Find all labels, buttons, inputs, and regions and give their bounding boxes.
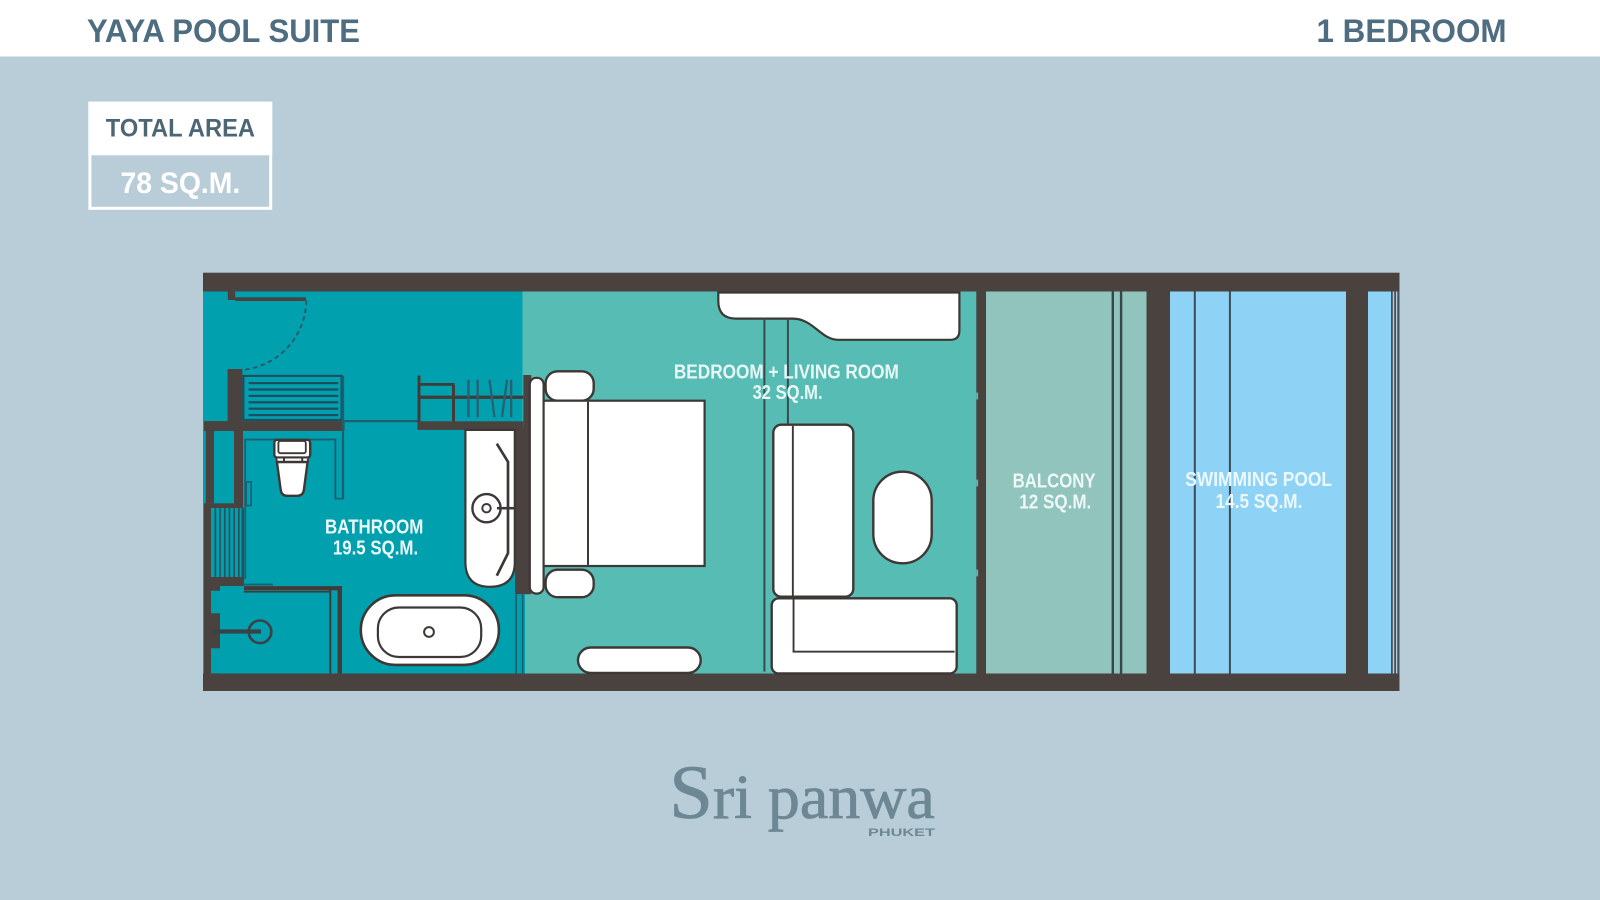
svg-text:19.5 SQ.M.: 19.5 SQ.M.: [333, 537, 418, 560]
svg-text:PHUKET: PHUKET: [868, 827, 935, 839]
svg-text:BATHROOM: BATHROOM: [325, 516, 423, 539]
svg-text:78 SQ.M.: 78 SQ.M.: [120, 167, 240, 200]
svg-text:BALCONY: BALCONY: [1013, 470, 1096, 493]
svg-text:YAYA POOL SUITE: YAYA POOL SUITE: [87, 13, 360, 49]
svg-text:Sri panwa: Sri panwa: [669, 751, 935, 835]
svg-text:TOTAL AREA: TOTAL AREA: [106, 115, 255, 143]
svg-text:SWIMMING POOL: SWIMMING POOL: [1185, 468, 1332, 491]
svg-text:1 BEDROOM: 1 BEDROOM: [1317, 13, 1507, 49]
svg-text:12 SQ.M.: 12 SQ.M.: [1019, 491, 1091, 514]
svg-text:14.5 SQ.M.: 14.5 SQ.M.: [1216, 490, 1303, 513]
svg-text:32 SQ.M.: 32 SQ.M.: [753, 381, 823, 404]
